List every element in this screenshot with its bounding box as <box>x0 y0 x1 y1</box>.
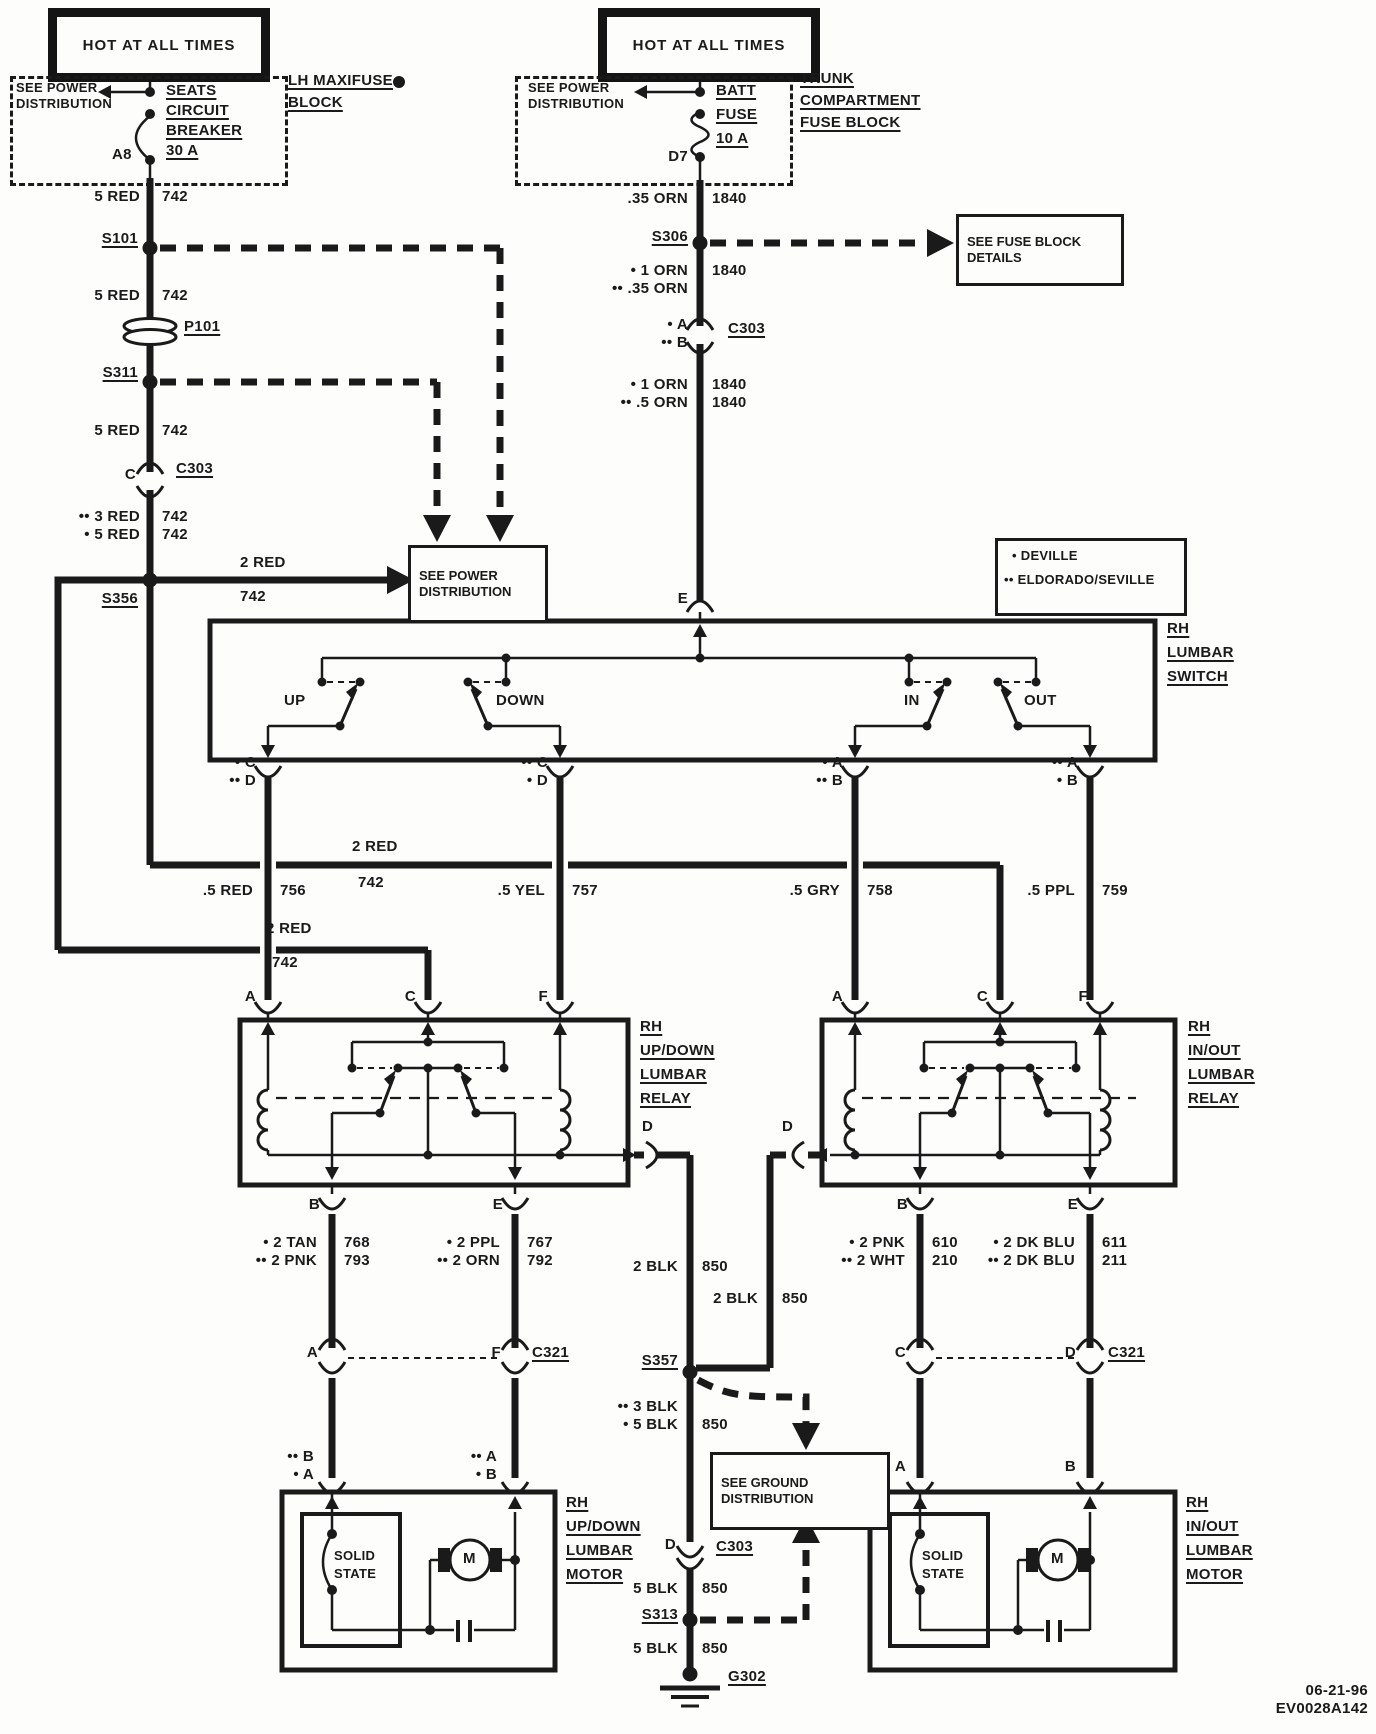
wire-circuit: 850 <box>702 1416 728 1434</box>
pin-d7: D7 <box>620 148 688 166</box>
wire-circuit: 1840 <box>712 262 747 280</box>
solid-state-label-1: SOLID <box>334 1548 375 1564</box>
relay-pin: E <box>1048 1196 1078 1214</box>
connector-c303-bottom: C303 <box>716 1538 753 1556</box>
wire-circuit: 742 <box>162 422 188 440</box>
wire-circuit: 1840 <box>712 376 747 394</box>
switch-pin: • B <box>998 772 1078 790</box>
bus2-circuit: 742 <box>272 954 298 972</box>
relay-pin: A <box>813 988 843 1006</box>
connector-pin: • A <box>600 316 688 334</box>
motor-m-label: M <box>1051 1550 1064 1568</box>
motor-pin: •• B <box>252 1448 314 1466</box>
wire-size: .5 PPL <box>970 882 1075 900</box>
relay-left-name-2: UP/DOWN <box>640 1042 715 1060</box>
ground-symbol <box>660 1688 720 1706</box>
wire-size: •• 3 BLK <box>586 1398 678 1416</box>
splice-s101: S101 <box>30 230 138 248</box>
wire-size: 5 BLK <box>586 1640 678 1658</box>
hot-at-all-times-box-right: HOT AT ALL TIMES <box>598 8 820 82</box>
motor-pin: • B <box>435 1466 497 1484</box>
see-power-note-left: SEE POWER DISTRIBUTION <box>16 80 134 112</box>
wire-circuit: 767 <box>527 1234 553 1252</box>
switch-in-label: IN <box>904 692 920 710</box>
breaker-rating: 30 A <box>166 142 198 160</box>
see-power-distribution-callout-text: SEE POWER DISTRIBUTION <box>419 568 537 600</box>
footer-date: 06-21-96 <box>1190 1682 1368 1700</box>
splice-s357: S357 <box>606 1352 678 1370</box>
wire-size: 5 RED <box>30 287 140 305</box>
solid-state-label-1: SOLID <box>922 1548 963 1564</box>
wire-size: •• 2 ORN <box>395 1252 500 1270</box>
bus-size: 2 RED <box>352 838 398 856</box>
switch-pin: •• A <box>998 754 1078 772</box>
wire-circuit: 759 <box>1102 882 1128 900</box>
splice-s313: S313 <box>606 1606 678 1624</box>
motor-brush <box>438 1548 450 1572</box>
hot-right-label: HOT AT ALL TIMES <box>607 17 811 73</box>
relay-pin: D <box>642 1118 653 1136</box>
splice-s311: S311 <box>30 364 138 382</box>
wire-size: • 2 PPL <box>395 1234 500 1252</box>
grommet-p101-symbol <box>124 319 176 345</box>
wire-circuit: 758 <box>867 882 893 900</box>
wire-circuit: 742 <box>162 188 188 206</box>
wire-circuit: 850 <box>702 1258 728 1276</box>
motor-brush <box>490 1548 502 1572</box>
wire-size: •• 2 DK BLU <box>950 1252 1075 1270</box>
trunk-label-2: COMPARTMENT <box>800 92 921 110</box>
wiring-diagram-page: HOT AT ALL TIMES HOT AT ALL TIMES SEE PO… <box>0 0 1376 1734</box>
motor-pin: • A <box>252 1466 314 1484</box>
motor-left-name-4: MOTOR <box>566 1566 623 1584</box>
switch-down-label: DOWN <box>496 692 545 710</box>
solid-state-label-2: STATE <box>922 1566 964 1582</box>
motor-left-name-3: LUMBAR <box>566 1542 633 1560</box>
relay-pin: D <box>782 1118 793 1136</box>
wire-size: • 5 RED <box>30 526 140 544</box>
see-power-note-right: SEE POWER DISTRIBUTION <box>528 80 646 112</box>
connector-pin: C <box>876 1344 906 1362</box>
wire-circuit: 850 <box>702 1580 728 1598</box>
wire-size: •• .5 ORN <box>568 394 688 412</box>
switch-pin: •• D <box>176 772 256 790</box>
see-fuse-block-details-text: SEE FUSE BLOCK DETAILS <box>967 234 1113 266</box>
wire-size: .5 YEL <box>440 882 545 900</box>
motor-right-name-4: MOTOR <box>1186 1566 1243 1584</box>
switch-pin-e: E <box>640 590 688 608</box>
breaker-label-1: SEATS <box>166 82 216 100</box>
lh-maxifuse-label: LH MAXIFUSE <box>288 72 393 90</box>
motor-symbols <box>438 1540 1090 1580</box>
relay-right-name-1: RH <box>1188 1018 1210 1036</box>
relay-pin: B <box>878 1196 908 1214</box>
relay-pin: C <box>386 988 416 1006</box>
switch-name-2: LUMBAR <box>1167 644 1234 662</box>
relay-left-name-4: RELAY <box>640 1090 691 1108</box>
relay-right-name-3: LUMBAR <box>1188 1066 1255 1084</box>
connector-pin: C <box>96 466 136 484</box>
connector-c303-right: C303 <box>728 320 765 338</box>
connector-c321-left: C321 <box>532 1344 569 1362</box>
legend-eldorado: •• ELDORADO/SEVILLE <box>1004 572 1155 588</box>
wire-circuit: 742 <box>240 588 266 606</box>
motor-right-name-2: IN/OUT <box>1186 1518 1239 1536</box>
wire-circuit: 792 <box>527 1252 553 1270</box>
see-ground-distribution-callout: SEE GROUND DISTRIBUTION <box>710 1452 890 1530</box>
trunk-label-1: TRUNK <box>800 70 854 88</box>
switch-name-3: SWITCH <box>1167 668 1228 686</box>
connector-glyphs <box>137 319 1113 1569</box>
wire-size: .5 RED <box>148 882 253 900</box>
relay-pin: B <box>290 1196 320 1214</box>
wire-size: 2 BLK <box>684 1290 758 1308</box>
wire-size: 2 BLK <box>600 1258 678 1276</box>
connector-c303-left: C303 <box>176 460 213 478</box>
ground-g302: G302 <box>728 1668 766 1686</box>
wire-circuit: 850 <box>702 1640 728 1658</box>
component-internals <box>108 76 1100 1630</box>
fuse-rating: 10 A <box>716 130 748 148</box>
wire-circuit: 756 <box>280 882 306 900</box>
motor-right-name-1: RH <box>1186 1494 1208 1512</box>
wire-size: • 5 BLK <box>586 1416 678 1434</box>
see-power-distribution-callout: SEE POWER DISTRIBUTION <box>408 545 548 623</box>
wire-circuit: 1840 <box>712 190 747 208</box>
connector-pin: D <box>646 1536 676 1554</box>
hot-left-label: HOT AT ALL TIMES <box>57 17 261 73</box>
wire-size: •• 2 PNK <box>212 1252 317 1270</box>
motor-m-label: M <box>463 1550 476 1568</box>
relay-pin: F <box>518 988 548 1006</box>
footer-code: EV0028A142 <box>1190 1700 1368 1718</box>
connector-pin: D <box>1046 1344 1076 1362</box>
motor-left-name-1: RH <box>566 1494 588 1512</box>
switch-pin: • D <box>468 772 548 790</box>
breaker-label-2: CIRCUIT <box>166 102 229 120</box>
relay-left-name-3: LUMBAR <box>640 1066 707 1084</box>
wire-size: • 1 ORN <box>568 376 688 394</box>
wire-circuit: 793 <box>344 1252 370 1270</box>
bus-circuit: 742 <box>358 874 384 892</box>
relay-pin: E <box>473 1196 503 1214</box>
switch-out-label: OUT <box>1024 692 1057 710</box>
wire-circuit: 611 <box>1102 1234 1127 1252</box>
see-ground-distribution-text: SEE GROUND DISTRIBUTION <box>721 1475 879 1507</box>
motor-pin: •• A <box>435 1448 497 1466</box>
relay-pin: F <box>1058 988 1088 1006</box>
wire-size: • 1 ORN <box>568 262 688 280</box>
motor-right-name-3: LUMBAR <box>1186 1542 1253 1560</box>
motor-left-name-2: UP/DOWN <box>566 1518 641 1536</box>
bus2-size: 2 RED <box>266 920 312 938</box>
relay-right-name-2: IN/OUT <box>1188 1042 1241 1060</box>
wire-circuit: 1840 <box>712 394 747 412</box>
wire-size: •• .35 ORN <box>568 280 688 298</box>
wire-circuit: 211 <box>1102 1252 1127 1270</box>
trunk-label-3: FUSE BLOCK <box>800 114 901 132</box>
wire-circuit: 742 <box>162 508 188 526</box>
wire-circuit: 742 <box>162 526 188 544</box>
splice-s356: S356 <box>28 590 138 608</box>
fuse-label-1: BATT <box>716 82 756 100</box>
relay-pin: C <box>958 988 988 1006</box>
switch-name-1: RH <box>1167 620 1189 638</box>
wire-size: .5 GRY <box>735 882 840 900</box>
wiring-artwork <box>0 0 1376 1734</box>
switch-pin: • A <box>763 754 843 772</box>
connector-pin: A <box>288 1344 318 1362</box>
connector-c321-right: C321 <box>1108 1344 1145 1362</box>
legend-deville: • DEVILLE <box>1012 548 1078 564</box>
see-fuse-block-details-callout: SEE FUSE BLOCK DETAILS <box>956 214 1124 286</box>
switch-pin: •• B <box>763 772 843 790</box>
wire-size: 5 RED <box>30 422 140 440</box>
relay-left-name-1: RH <box>640 1018 662 1036</box>
wire-circuit: 850 <box>782 1290 808 1308</box>
grommet-p101: P101 <box>184 318 220 336</box>
splice-s306: S306 <box>580 228 688 246</box>
connector-pin: •• B <box>600 334 688 352</box>
fuse-label-2: FUSE <box>716 106 757 124</box>
breaker-label-3: BREAKER <box>166 122 242 140</box>
switch-pin: •• C <box>468 754 548 772</box>
relay-pin: A <box>226 988 256 1006</box>
wire-circuit: 768 <box>344 1234 370 1252</box>
wire-size: 5 RED <box>30 188 140 206</box>
wire-size: 2 RED <box>240 554 286 572</box>
switch-up-label: UP <box>284 692 305 710</box>
wire-circuit: 757 <box>572 882 598 900</box>
motor-brush <box>1026 1548 1038 1572</box>
pin-a8: A8 <box>112 146 132 164</box>
solid-state-label-2: STATE <box>334 1566 376 1582</box>
relay-right-name-4: RELAY <box>1188 1090 1239 1108</box>
motor-pin: B <box>1042 1458 1076 1476</box>
lh-maxifuse-block-label: BLOCK <box>288 94 343 112</box>
connector-pin: F <box>471 1344 501 1362</box>
wire-size: •• 3 RED <box>30 508 140 526</box>
wire-size: • 2 PNK <box>800 1234 905 1252</box>
wire-size: •• 2 WHT <box>800 1252 905 1270</box>
wire-size: • 2 DK BLU <box>950 1234 1075 1252</box>
hot-at-all-times-box-left: HOT AT ALL TIMES <box>48 8 270 82</box>
motor-pin: A <box>872 1458 906 1476</box>
arrowheads <box>98 85 1107 1543</box>
wire-size: • 2 TAN <box>212 1234 317 1252</box>
switch-pin: • C <box>176 754 256 772</box>
wire-size: .35 ORN <box>568 190 688 208</box>
wire-circuit: 742 <box>162 287 188 305</box>
